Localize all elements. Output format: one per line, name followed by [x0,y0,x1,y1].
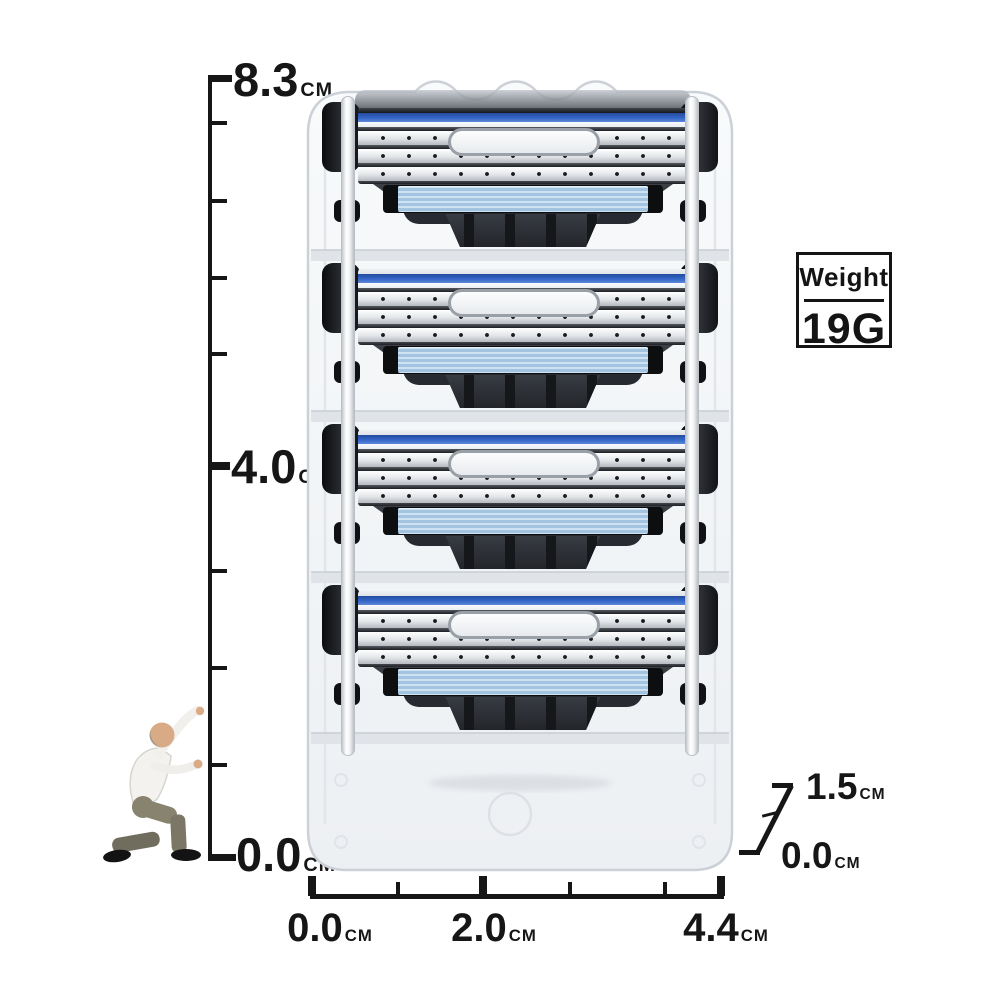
cartridge-connector [433,375,613,408]
head-pill-emblem [448,128,600,156]
tick-minor [212,569,227,573]
blade-stripe [358,113,690,122]
cartridge-connector [433,697,613,730]
unit-label: CM [345,926,373,945]
tick-major [308,876,316,896]
measurement-label-width-zero: 0.0CM [287,908,373,948]
unit-label: CM [834,855,860,872]
tick-minor [212,763,227,767]
tick-minor [568,882,572,896]
blade-band [358,328,690,342]
head-pill-emblem [448,289,600,317]
cartridge-head [358,591,690,667]
tick-major-middle [208,462,230,470]
tray-rail [341,96,355,756]
cartridge-connector [433,536,613,569]
tick-minor [212,199,227,203]
unit-label: CM [509,926,537,945]
horizontal-ruler-line [310,894,724,899]
tray-rail [685,96,699,756]
razor-cartridge [305,88,735,249]
unit-label: CM [741,926,769,945]
lubricating-strip [383,185,663,213]
razor-cartridge [305,410,735,571]
tick-minor [663,882,667,896]
tick-major [717,876,725,896]
cartridge-shadow [355,90,691,110]
head-pill-emblem [448,611,600,639]
blade-band [358,167,690,181]
lubricating-strip [383,346,663,374]
cartridge-head [358,108,690,184]
product-dimension-image: 8.3CM 4.0CM 0.0CM 0.0CM 2.0CM 4.4CM 1.5C… [0,0,1000,1000]
cartridge-head [358,430,690,506]
tick-major-bottom [208,854,236,861]
cartridge-connector [433,214,613,247]
weight-title: Weight [799,262,889,293]
tick-minor [212,121,227,125]
blade-stripe [358,274,690,283]
measurement-label-depth-zero: 0.0CM [781,837,861,874]
tick-minor [396,882,400,896]
blade-band [358,650,690,664]
kneeling-man-figure [103,706,207,868]
tray-smudge [428,775,612,791]
unit-label: CM [859,786,885,803]
tick-major-top [208,75,232,82]
tick-minor [212,666,227,670]
weight-badge: Weight 19G [796,252,892,348]
separator-line [804,299,884,302]
razor-cartridge [305,249,735,410]
tick-major [739,850,760,855]
measurement-label-width-max: 4.4CM [683,908,769,948]
product-tray [305,80,735,878]
measurement-label-depth-max: 1.5CM [806,768,886,805]
tick-major [479,876,487,896]
blade-stripe [358,596,690,605]
head-pill-emblem [448,450,600,478]
razor-cartridge [305,571,735,732]
weight-value: 19G [799,305,889,354]
lubricating-strip [383,668,663,696]
blade-band [358,489,690,503]
lubricating-strip [383,507,663,535]
tick-major [772,783,793,788]
measurement-label-width-mid: 2.0CM [451,908,537,948]
cartridge-head [358,269,690,345]
tick-minor [212,352,227,356]
blade-stripe [358,435,690,444]
tick-minor [212,276,227,280]
